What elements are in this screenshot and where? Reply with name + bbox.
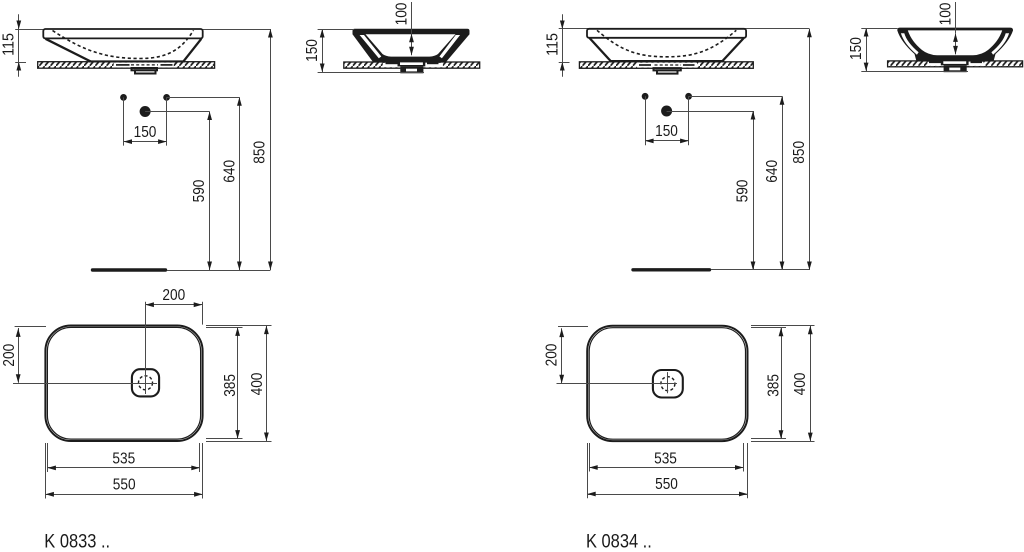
svg-text:115: 115 bbox=[1, 33, 18, 56]
svg-text:400: 400 bbox=[249, 373, 266, 396]
svg-text:150: 150 bbox=[304, 39, 321, 62]
svg-text:385: 385 bbox=[766, 374, 783, 397]
svg-text:115: 115 bbox=[544, 33, 561, 56]
svg-text:535: 535 bbox=[654, 450, 677, 467]
svg-text:550: 550 bbox=[113, 476, 136, 493]
svg-text:100: 100 bbox=[394, 3, 411, 26]
svg-text:100: 100 bbox=[938, 3, 955, 26]
svg-text:150: 150 bbox=[848, 37, 865, 60]
svg-text:K 0834 ..: K 0834 .. bbox=[586, 531, 652, 552]
svg-text:535: 535 bbox=[112, 451, 135, 468]
svg-text:590: 590 bbox=[735, 180, 752, 203]
svg-text:640: 640 bbox=[764, 160, 781, 183]
svg-text:550: 550 bbox=[655, 476, 678, 493]
svg-text:K 0833 ..: K 0833 .. bbox=[44, 531, 110, 552]
svg-text:150: 150 bbox=[655, 123, 678, 140]
svg-text:200: 200 bbox=[1, 344, 18, 367]
svg-text:200: 200 bbox=[162, 287, 185, 304]
svg-text:850: 850 bbox=[251, 141, 268, 164]
svg-text:150: 150 bbox=[134, 124, 157, 141]
svg-text:850: 850 bbox=[791, 141, 808, 164]
svg-text:385: 385 bbox=[222, 374, 239, 397]
svg-text:200: 200 bbox=[543, 344, 560, 367]
svg-text:590: 590 bbox=[191, 180, 208, 203]
svg-text:400: 400 bbox=[792, 373, 809, 396]
svg-text:640: 640 bbox=[221, 160, 238, 183]
